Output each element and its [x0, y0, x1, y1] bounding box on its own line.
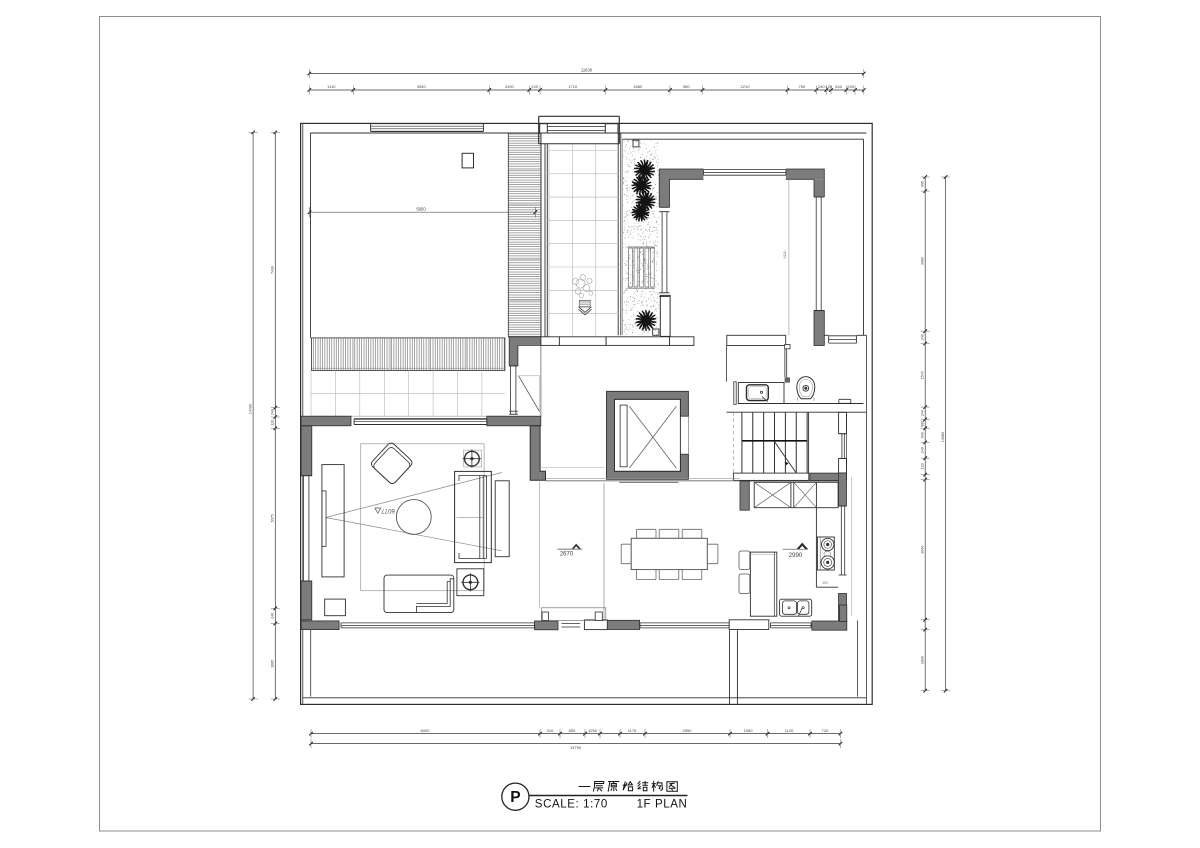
svg-text:1680: 1680 — [633, 84, 643, 89]
svg-text:11630: 11630 — [581, 68, 593, 73]
svg-text:2210: 2210 — [741, 84, 751, 89]
svg-text:1175: 1175 — [628, 728, 637, 733]
svg-text:650: 650 — [569, 728, 576, 733]
svg-text:240: 240 — [271, 613, 275, 619]
svg-text:240: 240 — [271, 409, 275, 415]
svg-text:SCALE: 1:70: SCALE: 1:70 — [535, 799, 608, 811]
svg-text:600: 600 — [822, 581, 828, 585]
svg-text:2670: 2670 — [560, 551, 574, 557]
svg-text:6000: 6000 — [421, 728, 431, 733]
svg-text:1060: 1060 — [744, 728, 754, 733]
svg-text:1710: 1710 — [568, 84, 578, 89]
svg-text:720: 720 — [822, 728, 829, 733]
svg-text:640: 640 — [920, 432, 924, 438]
svg-text:240: 240 — [818, 84, 825, 89]
svg-text:14790: 14790 — [248, 404, 252, 415]
svg-text:3960: 3960 — [920, 257, 924, 265]
svg-text:1250: 1250 — [588, 728, 598, 733]
svg-text:P: P — [510, 789, 520, 806]
svg-text:695: 695 — [920, 181, 924, 187]
svg-text:7430: 7430 — [271, 266, 275, 274]
svg-text:240: 240 — [847, 84, 854, 89]
svg-text:240: 240 — [531, 84, 538, 89]
svg-text:640: 640 — [835, 84, 842, 89]
svg-text:960: 960 — [683, 84, 690, 89]
svg-text:2550: 2550 — [683, 728, 693, 733]
svg-text:1570: 1570 — [920, 371, 924, 379]
svg-text:3640: 3640 — [920, 546, 924, 554]
svg-text:1F PLAN: 1F PLAN — [637, 799, 688, 811]
svg-text:310: 310 — [547, 728, 554, 733]
svg-text:750: 750 — [799, 84, 806, 89]
svg-text:120: 120 — [825, 84, 832, 89]
svg-text:13580: 13580 — [941, 432, 945, 443]
svg-text:2990: 2990 — [789, 552, 803, 559]
svg-text:6077: 6077 — [381, 507, 395, 514]
svg-text:5950: 5950 — [416, 207, 426, 212]
svg-text:980: 980 — [920, 421, 924, 427]
svg-text:6110: 6110 — [783, 251, 787, 259]
svg-text:1120: 1120 — [785, 728, 794, 733]
svg-text:1800: 1800 — [920, 656, 924, 664]
svg-text:240: 240 — [920, 410, 924, 416]
svg-text:1685: 1685 — [271, 660, 275, 668]
svg-text:1110: 1110 — [327, 84, 336, 89]
svg-text:3100: 3100 — [505, 84, 515, 89]
svg-text:120: 120 — [271, 420, 275, 426]
svg-text:3540: 3540 — [417, 84, 427, 89]
svg-text:120: 120 — [920, 463, 924, 469]
svg-text:5075: 5075 — [271, 514, 275, 522]
svg-text:13790: 13790 — [570, 745, 582, 750]
svg-text:240: 240 — [920, 447, 924, 453]
svg-text:240: 240 — [920, 334, 924, 340]
